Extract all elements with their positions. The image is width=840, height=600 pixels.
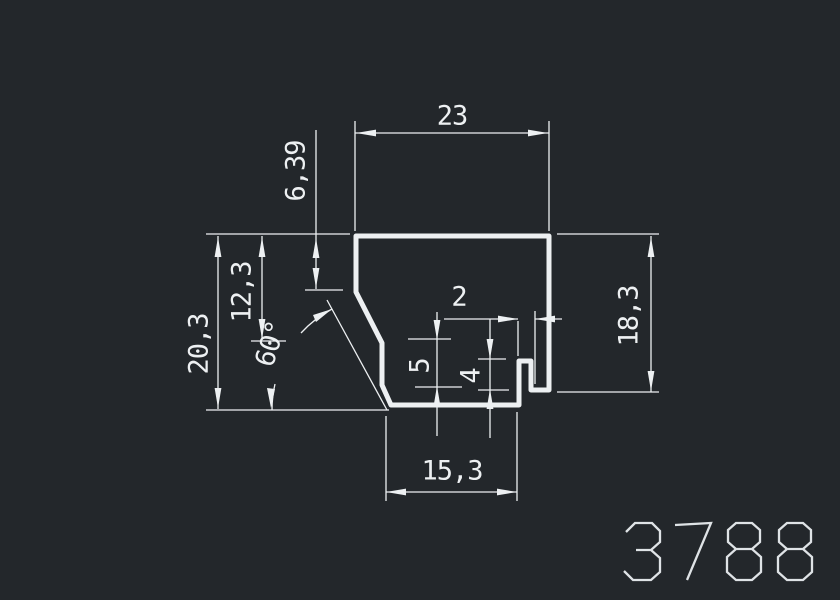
dim-label-left-chamfer-end-depth: 12,3 — [229, 261, 256, 322]
dim-label-total-height: 20,3 — [186, 313, 213, 374]
dimension-lines — [206, 121, 659, 501]
profile-drawing — [0, 0, 840, 600]
part-number-digit — [675, 523, 711, 580]
dim-label-chamfer-start-depth: 6,39 — [283, 140, 310, 201]
dim-label-hook-tab-width: 2 — [451, 284, 466, 311]
part-number — [624, 523, 812, 580]
cad-drawing-canvas: 23 6,39 12,3 20,3 60° 5 2 4 18,3 15,3 — [0, 0, 840, 600]
part-number-digit — [778, 523, 812, 580]
dim-label-lower-left-height: 5 — [407, 358, 434, 373]
profile-outline — [356, 236, 549, 405]
dim-label-top-width: 23 — [437, 103, 468, 130]
dim-label-right-side-height: 18,3 — [616, 285, 643, 346]
dim-label-hook-tab-height: 4 — [458, 368, 485, 383]
dim-label-bottom-width: 15,3 — [421, 458, 482, 485]
part-number-digit — [727, 523, 761, 580]
part-number-digit — [624, 523, 660, 580]
